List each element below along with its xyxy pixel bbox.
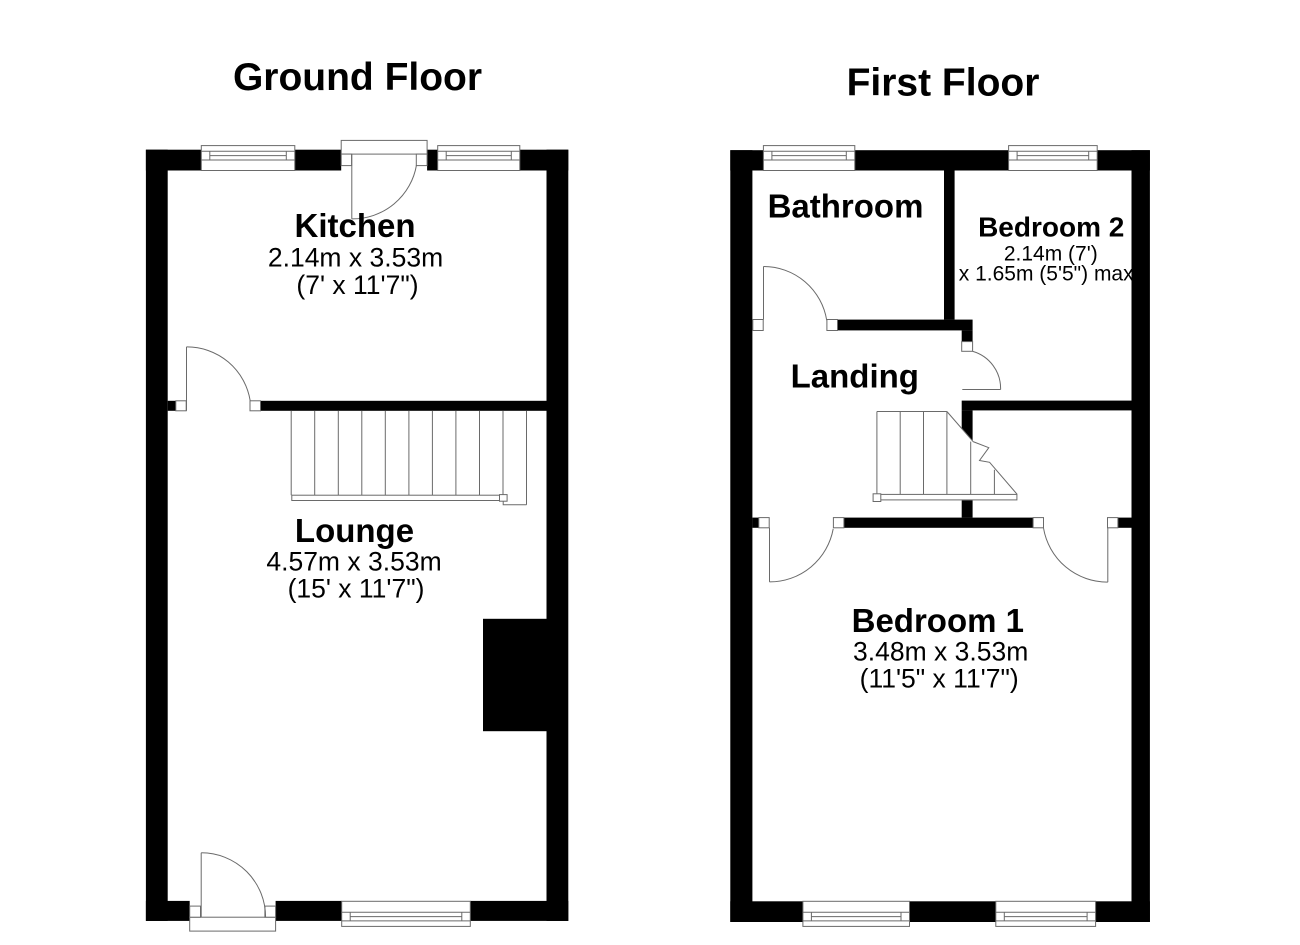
- svg-text:First Floor: First Floor: [847, 62, 1040, 105]
- svg-text:2.14m (7'): 2.14m (7'): [1004, 242, 1098, 265]
- svg-text:(7' x 11'7"): (7' x 11'7"): [296, 270, 418, 300]
- svg-text:Lounge: Lounge: [295, 512, 414, 549]
- svg-text:Bathroom: Bathroom: [768, 188, 924, 225]
- svg-text:Kitchen: Kitchen: [294, 207, 415, 244]
- svg-text:Landing: Landing: [791, 358, 919, 395]
- svg-text:Bedroom 2: Bedroom 2: [978, 211, 1124, 242]
- svg-text:x 1.65m (5'5") max: x 1.65m (5'5") max: [959, 262, 1134, 285]
- svg-text:(11'5" x 11'7"): (11'5" x 11'7"): [860, 664, 1019, 694]
- svg-text:Bedroom 1: Bedroom 1: [852, 602, 1024, 639]
- svg-text:3.48m x 3.53m: 3.48m x 3.53m: [853, 637, 1028, 667]
- svg-text:4.57m x 3.53m: 4.57m x 3.53m: [266, 547, 441, 577]
- svg-text:(15' x 11'7"): (15' x 11'7"): [288, 574, 425, 604]
- svg-text:2.14m x 3.53m: 2.14m x 3.53m: [268, 242, 443, 272]
- svg-text:Ground Floor: Ground Floor: [233, 56, 482, 99]
